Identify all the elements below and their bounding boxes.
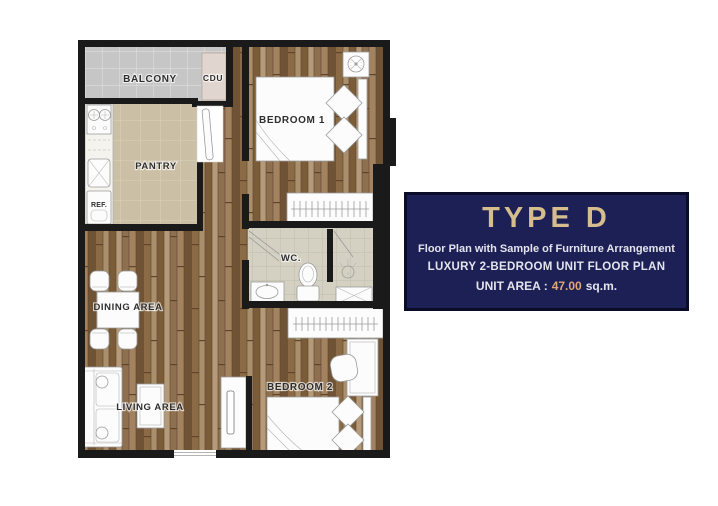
info-panel: TYPE D Floor Plan with Sample of Furnitu… bbox=[404, 192, 689, 311]
panel-title: TYPE D bbox=[407, 202, 686, 235]
cdu-label: CDU bbox=[203, 73, 223, 83]
dining-chair bbox=[90, 329, 109, 349]
pantry-label: PANTRY bbox=[135, 161, 177, 172]
balcony-floor bbox=[85, 47, 198, 98]
pillar bbox=[373, 164, 390, 309]
bed1-headboard bbox=[358, 79, 367, 159]
dining-chair bbox=[90, 271, 109, 291]
panel-plan-type: LUXURY 2-BEDROOM UNIT FLOOR PLAN bbox=[407, 261, 686, 273]
area-unit: sq.m. bbox=[586, 279, 617, 293]
living-label: LIVING AREA bbox=[116, 402, 183, 413]
pillar bbox=[383, 118, 396, 166]
bed2 bbox=[267, 397, 339, 453]
window-opening bbox=[174, 450, 216, 458]
dining-chair bbox=[118, 329, 137, 349]
balcony-label: BALCONY bbox=[123, 74, 177, 85]
screenshot-page: BALCONY CDU BEDROOM 1 PANTRY REF. WC. DI… bbox=[0, 0, 718, 506]
desk-chair bbox=[329, 353, 359, 383]
bed2-headboard bbox=[363, 397, 371, 453]
dining-chair bbox=[118, 271, 137, 291]
fridge-label: REF. bbox=[91, 202, 107, 209]
area-label: UNIT AREA : bbox=[476, 279, 548, 293]
panel-area-line: UNIT AREA :47.00sq.m. bbox=[407, 279, 686, 293]
dining-label: DINING AREA bbox=[93, 302, 162, 313]
bedroom1-label: BEDROOM 1 bbox=[259, 115, 325, 126]
bedroom2-label: BEDROOM 2 bbox=[267, 382, 333, 393]
tv-icon bbox=[227, 391, 234, 434]
area-value: 47.00 bbox=[552, 279, 582, 293]
wc-label: WC. bbox=[281, 253, 301, 264]
panel-subtitle: Floor Plan with Sample of Furniture Arra… bbox=[407, 243, 686, 255]
toilet-icon bbox=[299, 263, 317, 287]
